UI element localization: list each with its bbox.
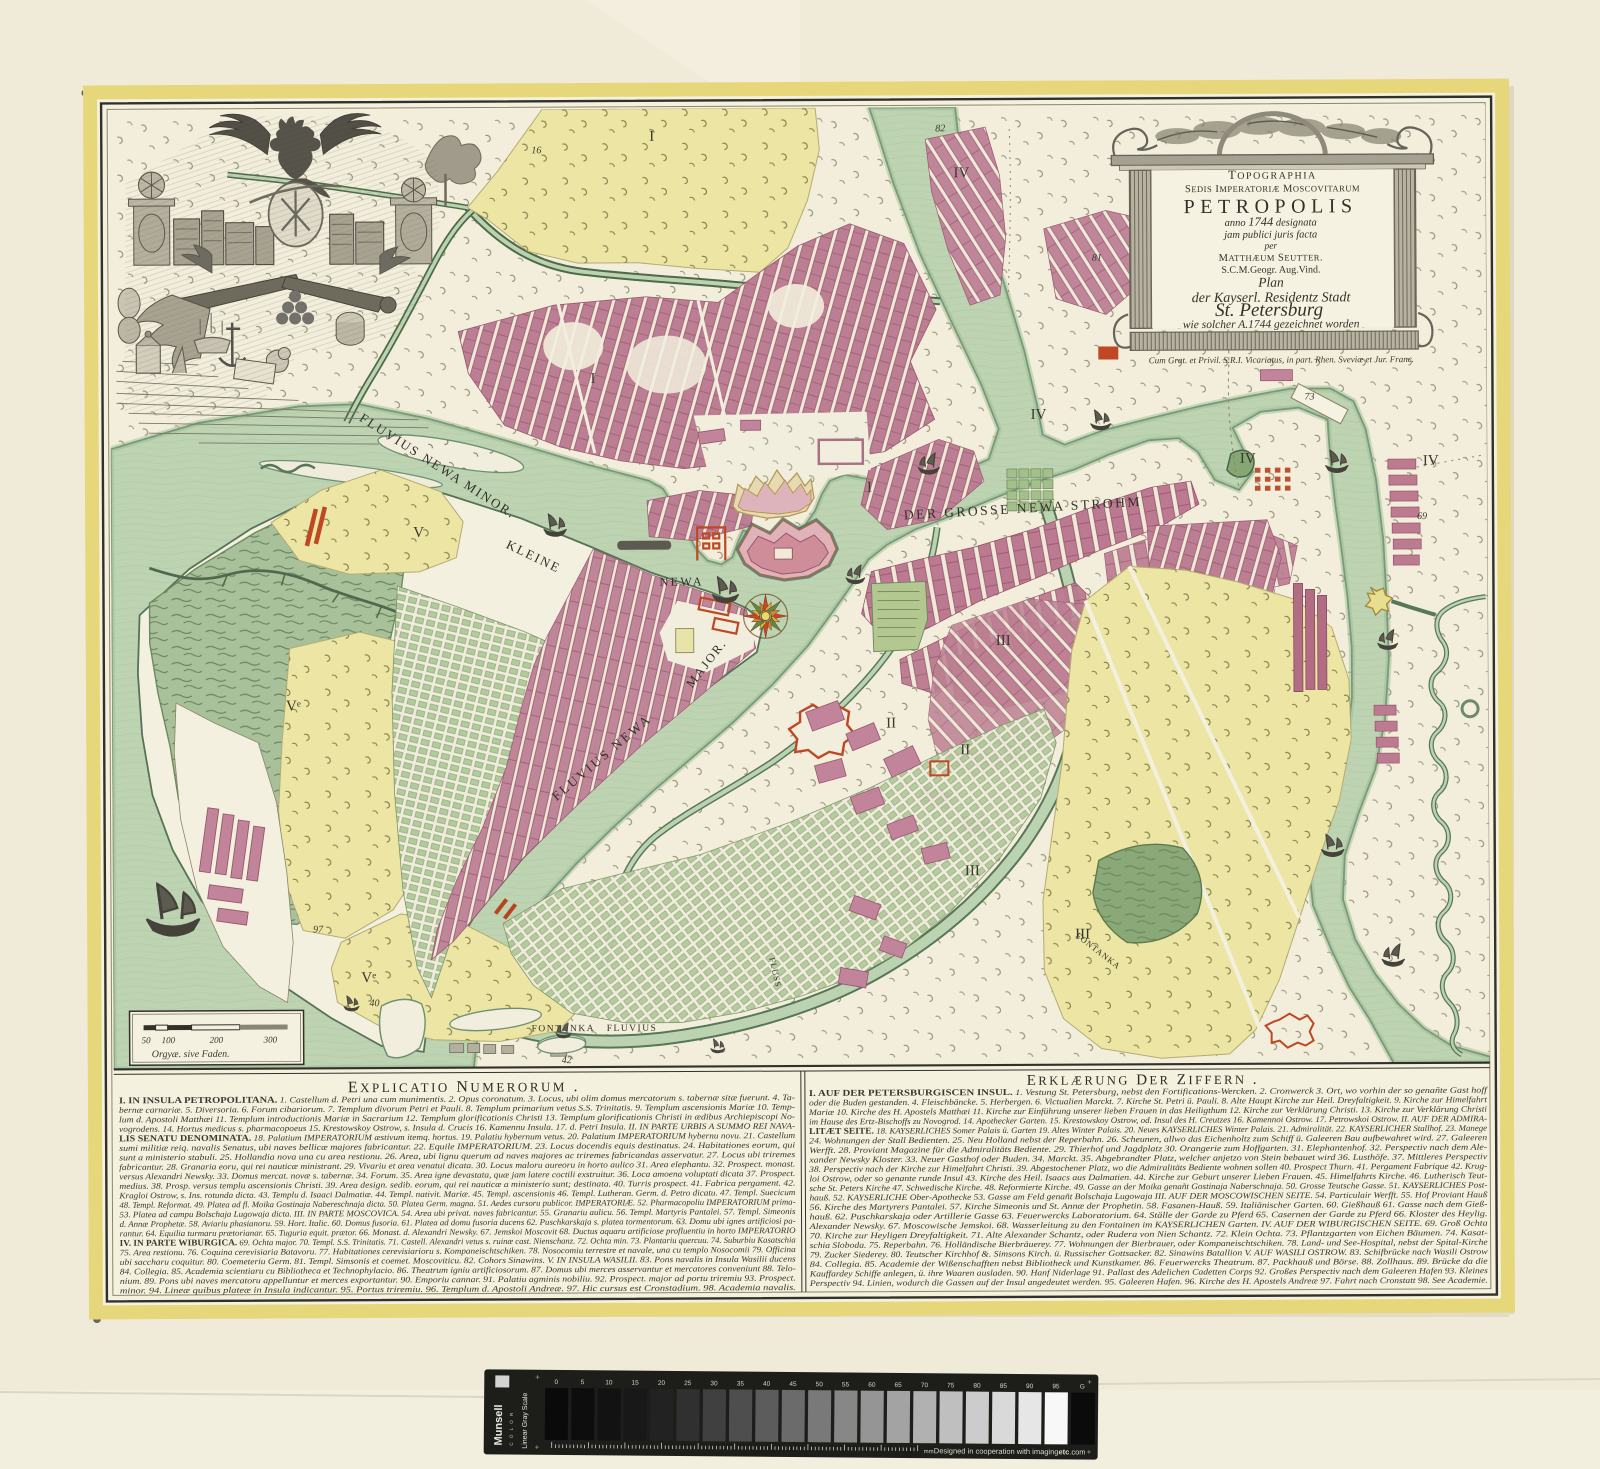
svg-text:55: 55 bbox=[842, 1381, 850, 1388]
svg-text:16: 16 bbox=[531, 145, 541, 156]
svg-text:50: 50 bbox=[816, 1381, 824, 1388]
svg-text:97: 97 bbox=[313, 924, 324, 935]
svg-text:Linear Gray Scale: Linear Gray Scale bbox=[522, 1393, 529, 1449]
svg-text:82: 82 bbox=[935, 123, 945, 134]
svg-text:I: I bbox=[649, 129, 654, 145]
svg-text:300: 300 bbox=[263, 1035, 278, 1045]
svg-text:25: 25 bbox=[684, 1380, 692, 1387]
svg-text:65: 65 bbox=[895, 1382, 903, 1389]
svg-text:80: 80 bbox=[973, 1383, 981, 1390]
svg-text:70: 70 bbox=[921, 1382, 929, 1389]
svg-text:+: + bbox=[535, 1443, 540, 1452]
svg-text:III: III bbox=[996, 633, 1011, 649]
svg-text:G: G bbox=[1080, 1384, 1085, 1391]
svg-text:IV: IV bbox=[953, 165, 969, 181]
svg-text:95: 95 bbox=[1052, 1383, 1060, 1390]
svg-text:200: 200 bbox=[210, 1035, 224, 1045]
svg-text:per: per bbox=[1263, 242, 1277, 252]
svg-text:wie solcher A.1744 gezeichnet: wie solcher A.1744 gezeichnet worden bbox=[1183, 318, 1360, 331]
svg-text:40: 40 bbox=[763, 1381, 771, 1388]
svg-text:69: 69 bbox=[1417, 511, 1427, 522]
svg-text:30: 30 bbox=[710, 1380, 718, 1387]
svg-text:jam publici juris facta: jam publici juris facta bbox=[1222, 229, 1317, 240]
svg-text:100: 100 bbox=[162, 1035, 176, 1045]
svg-text:0: 0 bbox=[554, 1379, 558, 1386]
svg-text:II: II bbox=[886, 716, 896, 732]
svg-text:20: 20 bbox=[658, 1380, 666, 1387]
svg-text:42: 42 bbox=[562, 1055, 572, 1066]
svg-text:81: 81 bbox=[1092, 253, 1102, 264]
svg-text:V: V bbox=[413, 525, 424, 541]
svg-text:75: 75 bbox=[947, 1382, 955, 1389]
svg-text:+: + bbox=[1087, 1378, 1092, 1387]
svg-text:Plan: Plan bbox=[1257, 275, 1284, 290]
svg-text:15: 15 bbox=[632, 1380, 640, 1387]
svg-text:Munsell: Munsell bbox=[493, 1404, 505, 1445]
svg-text:45: 45 bbox=[789, 1381, 797, 1388]
svg-text:mm: mm bbox=[924, 1449, 934, 1455]
svg-text:Designed in cooperation with i: Designed in cooperation with imagingetc.… bbox=[934, 1446, 1086, 1456]
svg-text:Cum Grat. et Privil. S.R.I. Vi: Cum Grat. et Privil. S.R.I. Vicariatus, … bbox=[1149, 354, 1414, 365]
svg-text:I: I bbox=[590, 371, 595, 387]
svg-text:5: 5 bbox=[581, 1379, 585, 1386]
svg-text:35: 35 bbox=[737, 1381, 745, 1388]
svg-text:C O L O R: C O L O R bbox=[509, 1411, 514, 1445]
svg-text:III: III bbox=[1075, 927, 1090, 943]
svg-text:90: 90 bbox=[1026, 1383, 1034, 1390]
svg-text:II: II bbox=[960, 742, 970, 758]
svg-text:III: III bbox=[965, 863, 980, 879]
svg-text:NEWA: NEWA bbox=[659, 574, 704, 588]
svg-text:73: 73 bbox=[1304, 391, 1314, 402]
svg-text:50: 50 bbox=[142, 1035, 152, 1045]
svg-text:10: 10 bbox=[605, 1379, 613, 1386]
svg-text:40: 40 bbox=[369, 998, 379, 1009]
svg-text:MATTHÆUM SEUTTER.: MATTHÆUM SEUTTER. bbox=[1219, 252, 1324, 264]
svg-text:60: 60 bbox=[868, 1382, 876, 1389]
svg-text:I: I bbox=[867, 480, 872, 496]
svg-text:IV: IV bbox=[1031, 407, 1047, 423]
svg-text:85: 85 bbox=[1000, 1383, 1008, 1390]
svg-text:FONTANKA FLUVIUS: FONTANKA FLUVIUS bbox=[532, 1024, 658, 1035]
svg-text:Orgyæ. sive Faden.: Orgyæ. sive Faden. bbox=[152, 1049, 230, 1060]
svg-text:IV: IV bbox=[1423, 453, 1439, 469]
svg-text:SEDIS IMPERATORIÆ MOSCOVITARUM: SEDIS IMPERATORIÆ MOSCOVITARUM bbox=[1185, 183, 1360, 195]
svg-text:IV: IV bbox=[1240, 451, 1256, 467]
svg-text:+: + bbox=[535, 1373, 540, 1382]
svg-text:+: + bbox=[1087, 1448, 1092, 1457]
